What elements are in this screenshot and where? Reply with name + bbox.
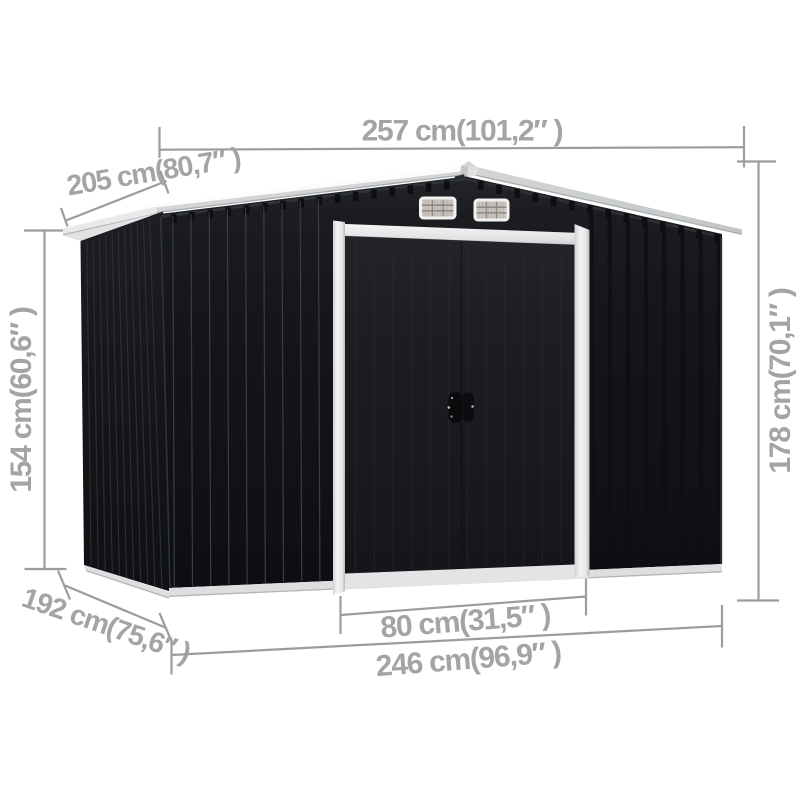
svg-text:257 cm(101,2″ ): 257 cm(101,2″ ) bbox=[362, 115, 563, 148]
svg-text:178 cm(70,1″ ): 178 cm(70,1″ ) bbox=[764, 288, 797, 474]
svg-text:154 cm(60,6″ ): 154 cm(60,6″ ) bbox=[5, 307, 38, 493]
